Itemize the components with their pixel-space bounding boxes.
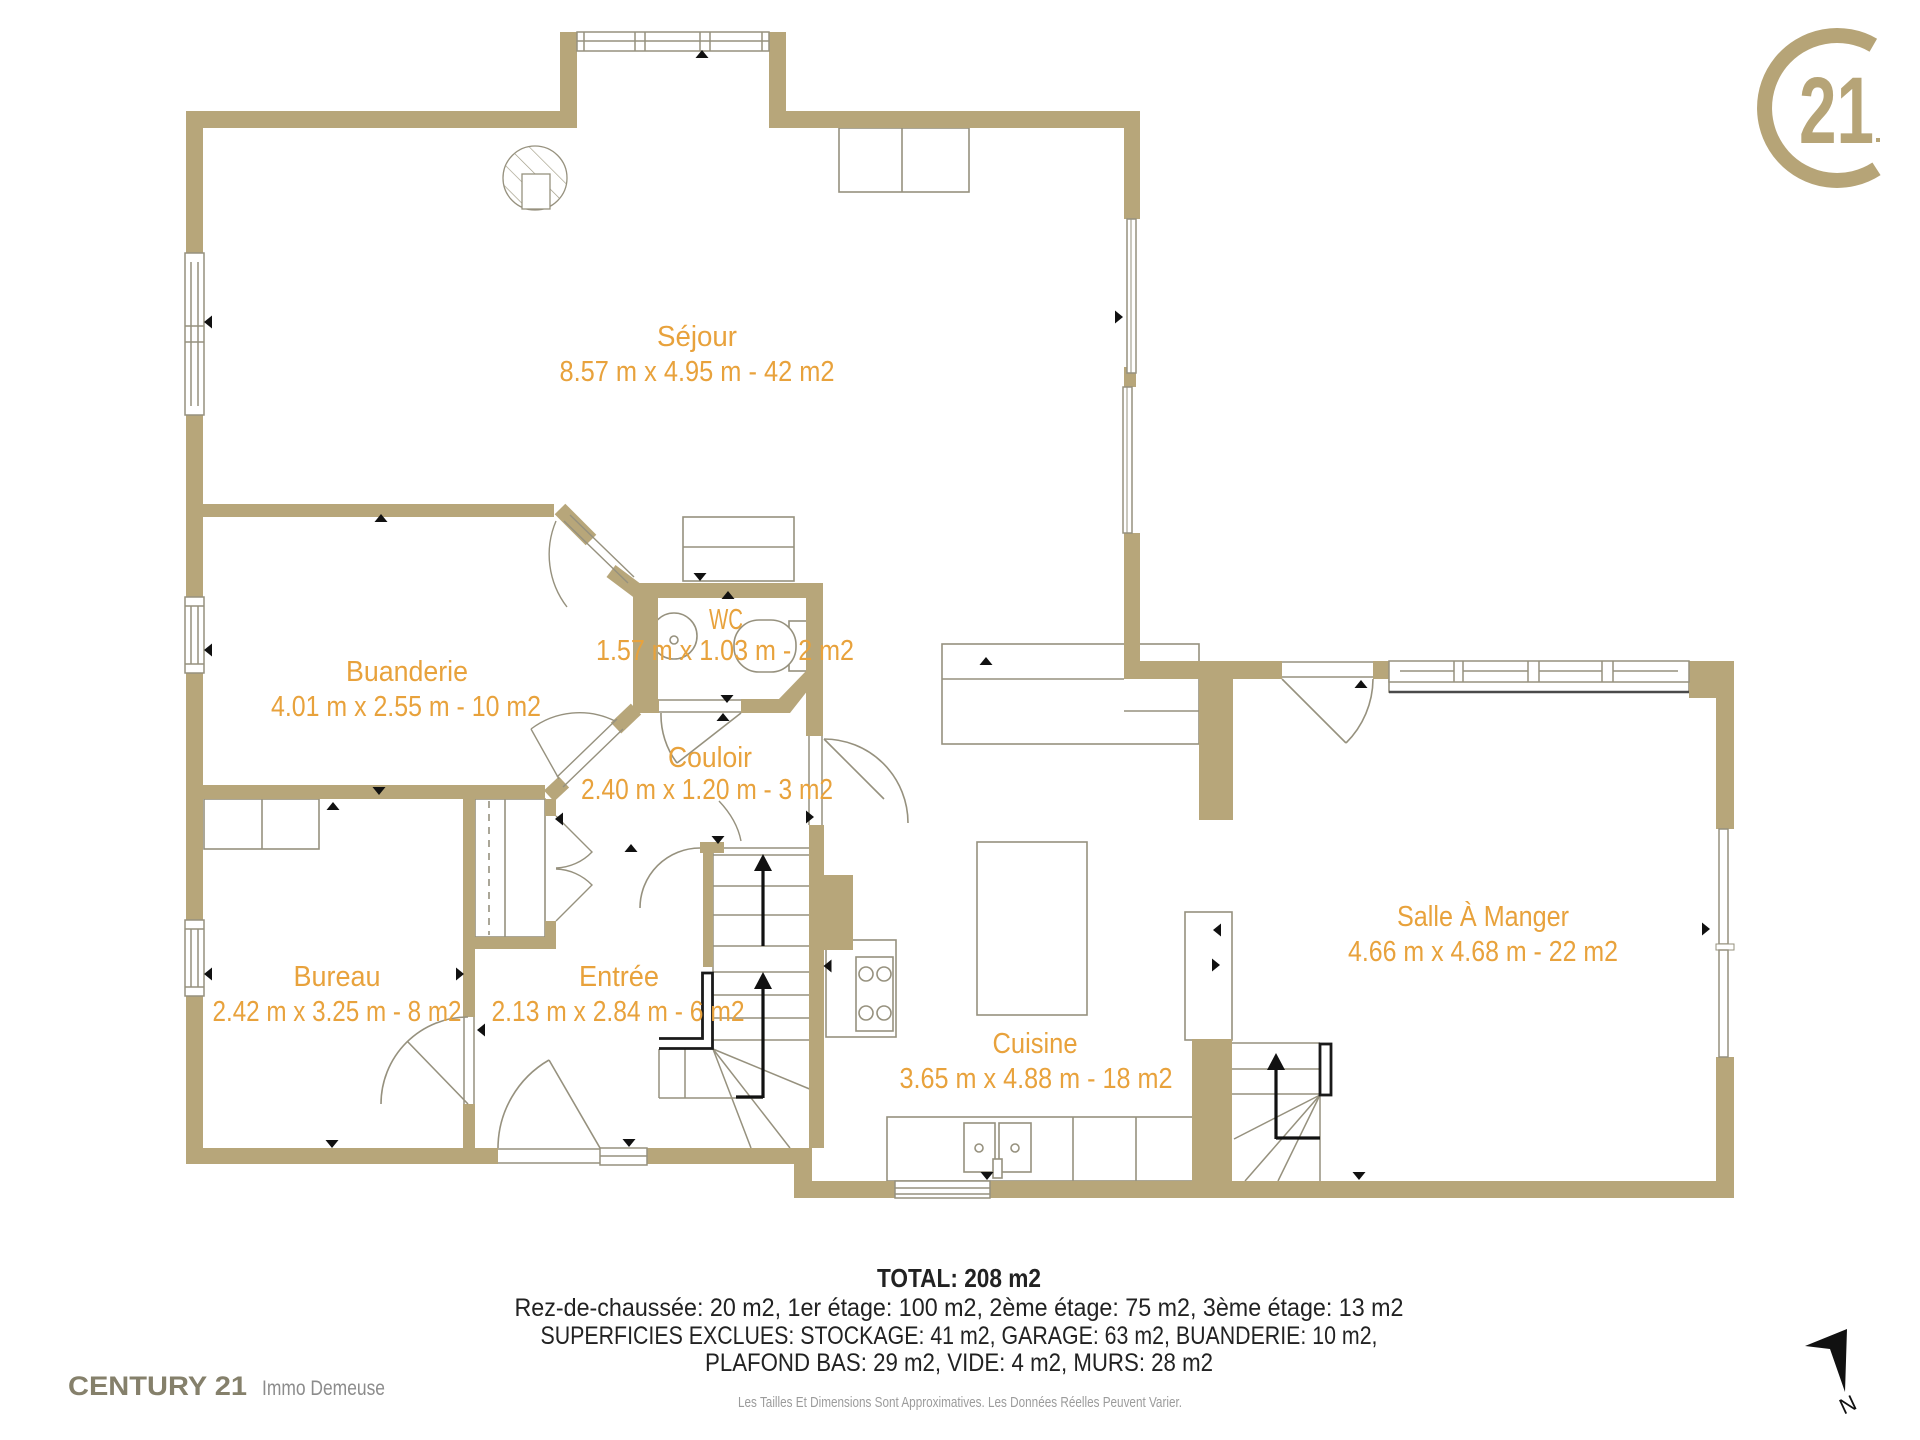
svg-text:Immo Demeuse: Immo Demeuse (262, 1377, 385, 1400)
svg-text:4.01 m x 2.55 m - 10 m2: 4.01 m x 2.55 m - 10 m2 (271, 691, 541, 723)
svg-text:Entrée: Entrée (579, 961, 659, 993)
svg-text:2.13 m x 2.84 m - 6 m2: 2.13 m x 2.84 m - 6 m2 (492, 996, 745, 1028)
svg-text:Buanderie: Buanderie (346, 656, 468, 688)
svg-text:SUPERFICIES EXCLUES: STOCKAGE:: SUPERFICIES EXCLUES: STOCKAGE: 41 m2, GA… (541, 1322, 1378, 1350)
svg-text:8.57 m x 4.95 m - 42 m2: 8.57 m x 4.95 m - 42 m2 (560, 356, 835, 388)
svg-text:Couloir: Couloir (668, 742, 752, 774)
svg-text:PLAFOND BAS: 29 m2, VIDE: 4 m2: PLAFOND BAS: 29 m2, VIDE: 4 m2, MURS: 28… (705, 1349, 1213, 1377)
svg-text:CENTURY 21: CENTURY 21 (68, 1371, 247, 1401)
svg-text:4.66 m x 4.68 m - 22 m2: 4.66 m x 4.68 m - 22 m2 (1348, 936, 1618, 968)
svg-text:Bureau: Bureau (294, 961, 381, 993)
svg-text:1.57 m x 1.03 m - 2 m2: 1.57 m x 1.03 m - 2 m2 (596, 635, 854, 667)
svg-text:TOTAL: 208 m2: TOTAL: 208 m2 (877, 1263, 1041, 1293)
svg-text:2.42 m x 3.25 m - 8 m2: 2.42 m x 3.25 m - 8 m2 (213, 996, 462, 1028)
svg-text:Salle À Manger: Salle À Manger (1397, 900, 1569, 933)
svg-text:Séjour: Séjour (657, 321, 737, 353)
svg-text:Rez-de-chaussée: 20 m2, 1er ét: Rez-de-chaussée: 20 m2, 1er étage: 100 m… (515, 1294, 1404, 1322)
svg-text:3.65 m x 4.88 m - 18 m2: 3.65 m x 4.88 m - 18 m2 (900, 1063, 1173, 1095)
svg-text:2.40 m x 1.20 m - 3 m2: 2.40 m x 1.20 m - 3 m2 (581, 774, 833, 806)
svg-text:21: 21 (1799, 58, 1874, 164)
svg-text:WC: WC (709, 604, 743, 636)
svg-text:Les Tailles Et Dimensions Sont: Les Tailles Et Dimensions Sont Approxima… (738, 1394, 1182, 1411)
svg-text:Cuisine: Cuisine (993, 1028, 1078, 1060)
